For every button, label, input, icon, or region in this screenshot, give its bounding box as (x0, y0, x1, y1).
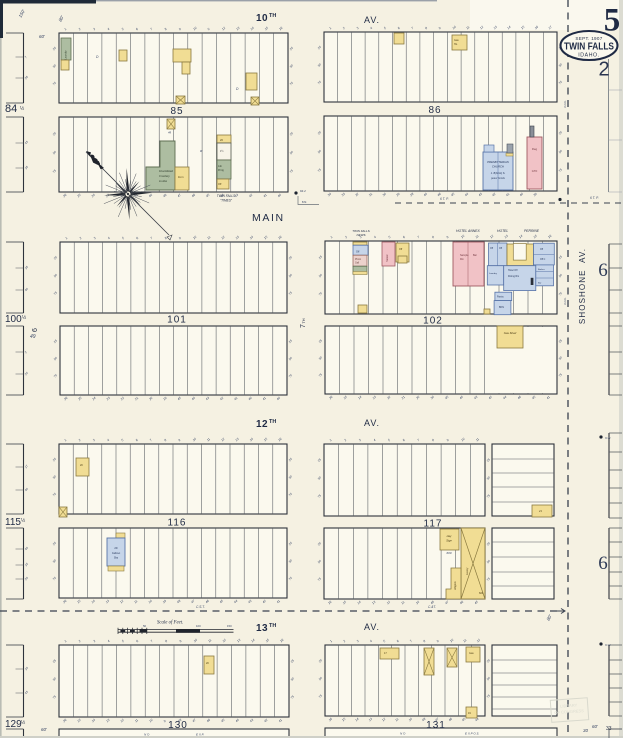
svg-text:60': 60' (39, 34, 45, 39)
svg-text:6: 6 (598, 553, 608, 574)
svg-text:6: 6 (32, 328, 39, 332)
svg-text:pews’ Grnds: pews’ Grnds (490, 177, 506, 180)
svg-text:Rm: Rm (460, 258, 464, 261)
svg-text:4 CH.: 4 CH. (563, 100, 567, 108)
svg-text:C.S.T.: C.S.T. (196, 605, 205, 609)
svg-text:TH: TH (269, 13, 276, 19)
svg-text:Flour&Feed: Flour&Feed (159, 169, 174, 173)
svg-text:100: 100 (196, 624, 201, 628)
svg-text:Pantry: Pantry (497, 296, 504, 299)
svg-text:116: 116 (168, 518, 187, 529)
svg-text:Bar: Bar (538, 282, 542, 285)
svg-text:2: 2 (598, 59, 609, 81)
svg-text:49: 49 (168, 131, 172, 135)
svg-text:Bar: Bar (473, 254, 477, 257)
svg-text:N O: N O (400, 732, 406, 736)
svg-text:130: 130 (168, 720, 188, 731)
svg-text:“TIMES”: “TIMES” (220, 199, 233, 203)
svg-text:150: 150 (227, 624, 232, 628)
svg-text:E X P O S.: E X P O S. (465, 732, 480, 736)
svg-text:SHOSHONE AV.: SHOSHONE AV. (578, 248, 587, 324)
svg-text:CHURCH: CHURCH (492, 165, 505, 169)
svg-text:B.M.: B.M. (302, 201, 307, 204)
svg-text:Furn: Furn (178, 175, 184, 179)
svg-text:6 T. P.: 6 T. P. (440, 197, 449, 201)
svg-text:AV.: AV. (364, 418, 380, 428)
svg-text:Gall: Gall (355, 263, 360, 265)
svg-text:Barber: Barber (538, 268, 545, 271)
svg-text:60': 60' (41, 727, 47, 732)
svg-text:600: 600 (446, 551, 451, 555)
svg-text:Ho.: Ho. (454, 43, 458, 46)
svg-text:Livery: Livery (465, 567, 469, 575)
svg-text:131: 131 (426, 720, 446, 731)
svg-text:O.H.: O.H. (605, 643, 611, 647)
svg-text:Wagons: Wagons (454, 580, 457, 590)
svg-text:Off: Off (499, 248, 502, 250)
svg-text:6: 6 (598, 260, 608, 281)
svg-text:Hay: Hay (447, 534, 452, 538)
svg-text:60': 60' (592, 724, 598, 729)
svg-text:TH: TH (269, 623, 276, 629)
svg-text:101: 101 (167, 315, 187, 326)
svg-text:HOTEL: HOTEL (497, 229, 508, 233)
svg-text:129: 129 (5, 719, 22, 730)
svg-text:& Hdw: & Hdw (159, 179, 168, 183)
svg-text:Dwg: Dwg (532, 147, 538, 151)
svg-text:IDAHO.: IDAHO. (578, 53, 599, 59)
svg-text:Gas Shed: Gas Shed (504, 331, 517, 335)
svg-text:Prntg: Prntg (218, 169, 224, 172)
svg-text:AV.: AV. (364, 15, 380, 25)
svg-text:AV.: AV. (364, 622, 380, 632)
svg-text:Scale of Feet.: Scale of Feet. (157, 621, 183, 626)
svg-text:Gas: Gas (454, 39, 459, 42)
svg-text:21: 21 (538, 509, 542, 513)
svg-text:6 T. P.: 6 T. P. (590, 196, 599, 200)
svg-text:Photo: Photo (355, 258, 362, 261)
svg-text:Laundry: Laundry (64, 50, 68, 60)
svg-text:Off: Off (490, 248, 493, 250)
svg-text:30: 30 (583, 728, 589, 733)
svg-text:10: 10 (256, 13, 268, 24)
svg-text:84: 84 (5, 103, 17, 115)
svg-text:GTO: GTO (532, 169, 538, 173)
svg-text:12: 12 (256, 419, 268, 430)
svg-text:N O: N O (144, 733, 150, 737)
svg-text:Laundry: Laundry (489, 272, 498, 275)
svg-text:PERRINE: PERRINE (524, 229, 540, 233)
svg-text:Stge: Stge (446, 539, 452, 543)
svg-text:Off: Off (540, 249, 543, 251)
svg-text:NEWS: NEWS (357, 233, 366, 237)
svg-text:TH: TH (301, 318, 306, 323)
svg-text:MAIN: MAIN (252, 212, 285, 224)
svg-text:115: 115 (5, 517, 21, 528)
svg-text:100: 100 (5, 314, 22, 325)
svg-text:2D: 2D (114, 547, 117, 550)
svg-text:Shp: Shp (114, 557, 119, 560)
svg-text:BKN: BKN (499, 306, 504, 309)
svg-text:Off: Off (356, 251, 360, 254)
svg-text:86: 86 (428, 105, 441, 116)
svg-text:Job: Job (218, 165, 223, 168)
svg-text:4 CH.: 4 CH. (563, 297, 567, 305)
svg-text:E X P.: E X P. (196, 733, 204, 737)
svg-text:600: 600 (479, 592, 484, 595)
svg-text:TWIN FALLS: TWIN FALLS (564, 42, 614, 53)
svg-text:TH: TH (269, 419, 276, 425)
svg-text:102: 102 (423, 316, 443, 327)
svg-text:TWIN FALLS: TWIN FALLS (217, 194, 236, 198)
svg-text:Off C: Off C (540, 259, 546, 261)
svg-text:PRESBYTERIAN: PRESBYTERIAN (487, 160, 510, 164)
svg-text:Cabinet: Cabinet (112, 552, 121, 555)
svg-text:13: 13 (256, 623, 268, 634)
svg-text:C.&T.: C.&T. (428, 605, 436, 609)
svg-text:SEPT. 1907: SEPT. 1907 (575, 36, 602, 41)
svg-text:Gas: Gas (469, 652, 474, 655)
svg-text:O.H.: O.H. (605, 436, 611, 440)
svg-text:49: 49 (30, 334, 36, 340)
svg-text:Dining Rm: Dining Rm (508, 275, 519, 278)
svg-text:64.2: 64.2 (300, 189, 306, 193)
svg-text:Crockery: Crockery (159, 174, 170, 178)
svg-text:HOTEL ANNEX: HOTEL ANNEX (456, 229, 480, 233)
svg-text:Off: Off (399, 248, 402, 251)
svg-text:Saloon: Saloon (386, 254, 389, 262)
svg-text:85: 85 (170, 106, 183, 117)
svg-text:Off: Off (218, 183, 222, 186)
svg-text:1. B(brick) S.: 1. B(brick) S. (491, 172, 506, 175)
svg-text:Sample: Sample (460, 254, 469, 257)
svg-text:117: 117 (424, 519, 443, 530)
svg-text:50: 50 (143, 624, 147, 628)
svg-text:Hotel Off: Hotel Off (508, 269, 518, 272)
